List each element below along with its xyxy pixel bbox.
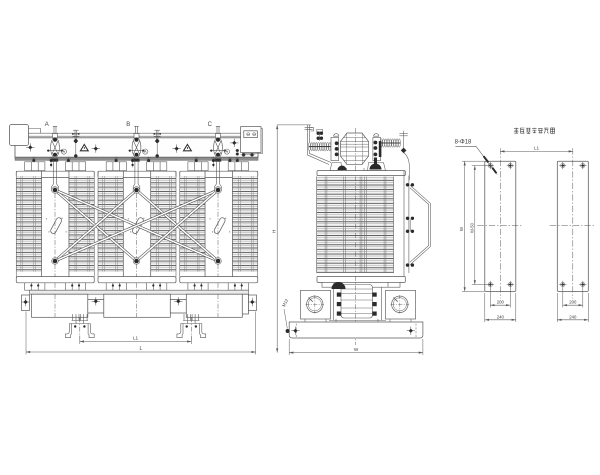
svg-text:B: B bbox=[126, 122, 130, 128]
svg-text:W-50: W-50 bbox=[469, 222, 474, 233]
svg-text:8-Φ18: 8-Φ18 bbox=[455, 140, 472, 146]
svg-text:240: 240 bbox=[569, 314, 577, 319]
svg-text:C: C bbox=[208, 122, 213, 128]
svg-text:200: 200 bbox=[497, 300, 505, 305]
svg-text:A: A bbox=[45, 122, 49, 128]
svg-text:L: L bbox=[139, 346, 142, 352]
svg-text:200: 200 bbox=[569, 300, 577, 305]
svg-text:H: H bbox=[272, 230, 277, 233]
svg-text:L1: L1 bbox=[133, 336, 139, 341]
svg-text:240: 240 bbox=[497, 314, 505, 319]
svg-text:W: W bbox=[354, 347, 359, 352]
svg-text:L1: L1 bbox=[534, 146, 540, 151]
